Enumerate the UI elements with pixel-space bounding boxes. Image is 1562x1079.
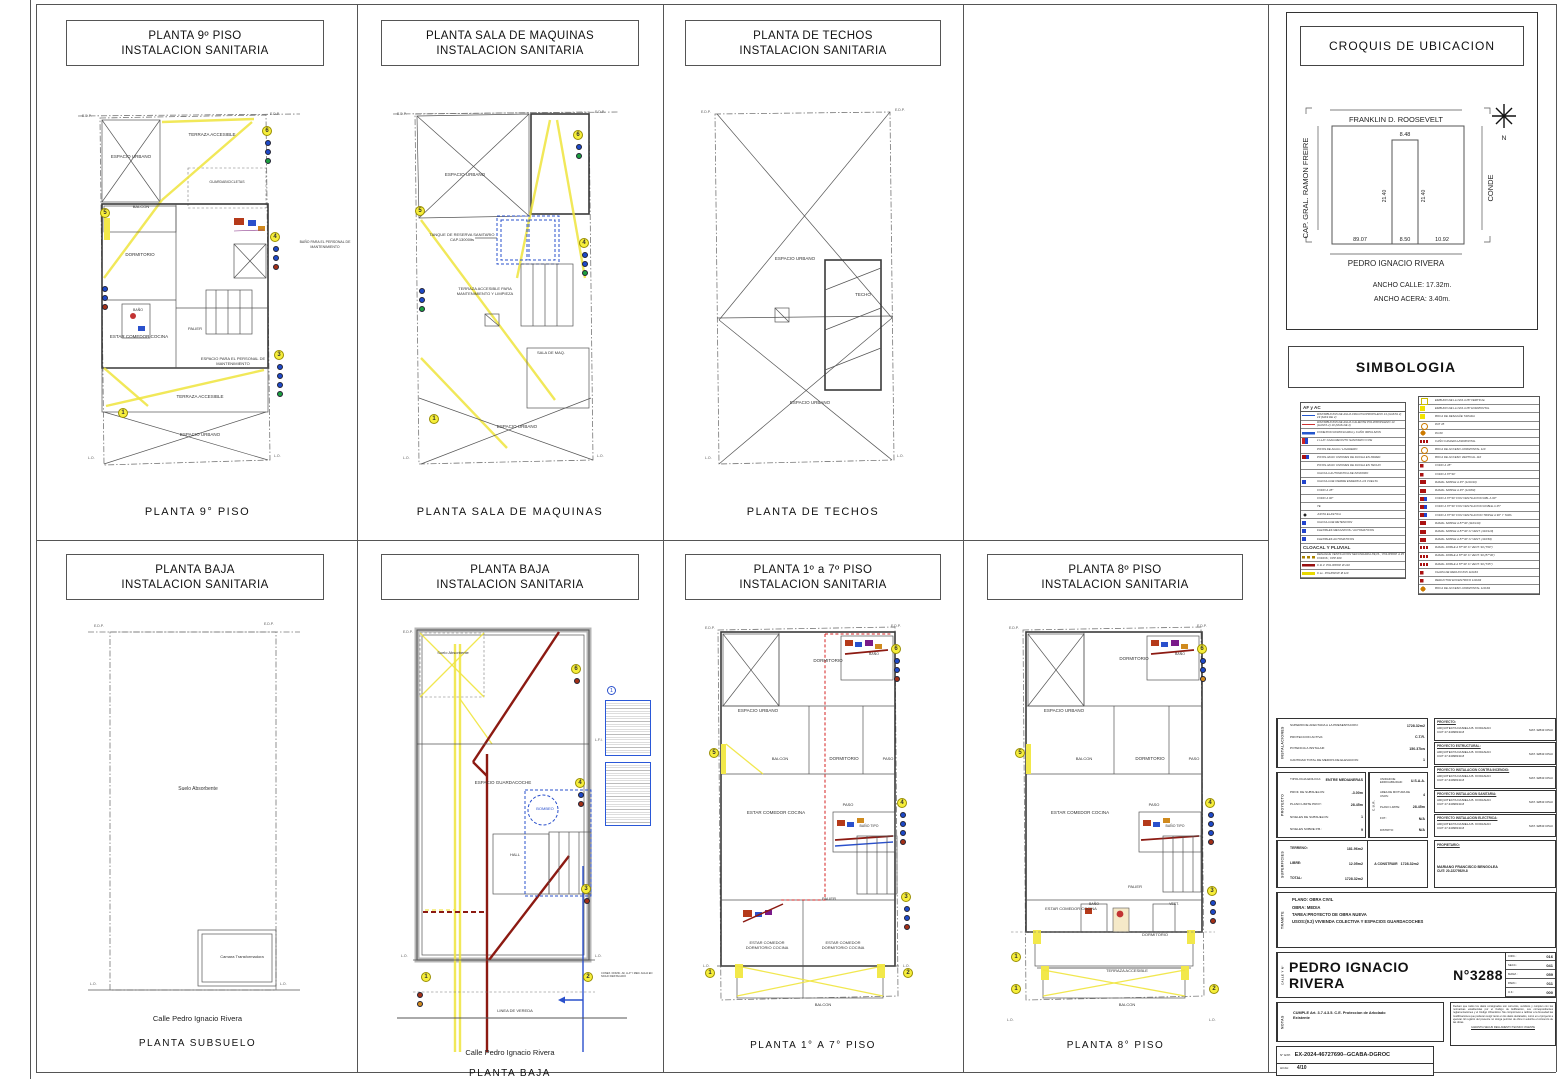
room-label: ESTAR COMEDOR DORMITORIO COCINA [739,940,795,950]
legend-label: BOCA DE ACCESO HORIZONTAL 110 [1435,448,1485,451]
riser-dot-icon [582,270,588,276]
catastro-row: CIRC.: 016 [1506,953,1555,961]
legend-symbol-icon [1420,529,1433,535]
field-label: NIVELES DE SUBSUELOS: [1290,816,1329,819]
catastro-label: CIRC.: [1508,955,1516,958]
field-label: SUPERFICIE AFECTADA A LA PRESENTACION: [1290,724,1358,727]
legend-row: RAMAL SIMPLE A 87°30' (110/110) [1419,520,1539,528]
legend-symbol-icon [1420,512,1433,518]
legend-label: RAMAL DOBLE A 87°30' C/ VENT. 90 (87°30'… [1435,554,1495,557]
section-label: TRAMITE [1277,893,1287,947]
panel-title-box: PLANTA BAJA INSTALACION SANITARIA [66,554,324,600]
croquis-title: CROQUIS DE UBICACION [1300,26,1524,66]
tramite-line: TAREA:PROYECTO DE OBRA NUEVA [1292,912,1551,917]
street-name: CONDE [1486,174,1495,201]
legend-symbol-icon [1302,562,1315,568]
legend-row: RAMAL SIMPLE A 45° (110/63) [1419,487,1539,495]
floorplan-drawing [663,604,963,1044]
riser-dot-icon [1200,676,1206,682]
room-label: HALL [495,852,535,857]
riser-dot-icon [900,812,906,818]
riser-dot-icon [904,906,910,912]
section-label: C.U.R. [1369,773,1377,837]
room-label: Suelo Absorbente [158,786,238,793]
legend-row: CODO A 87°30' [1419,471,1539,479]
field-label: PLANO LIMITE: [1380,806,1400,809]
field-label: CANTIDAD TOTAL DE MEDIOS DE ELEVACION: [1290,759,1359,762]
legend-symbol-icon [1420,586,1433,592]
field-row: SUPERFICIE AFECTADA A LA PRESENTACION: 1… [1290,724,1425,728]
expediente-row: N° EXP. EX-2024-46727690--GCABA-DGROC [1277,1047,1433,1064]
street-name: FRANKLIN D. ROOSEVELT [1349,115,1443,124]
legend-symbol-icon [1302,512,1315,518]
dim-label: 10.92 [1435,237,1449,243]
catastro-row: MANZ.: 059 [1506,971,1555,979]
field-row: PLANO LIMITE: 28.45m [1380,805,1425,809]
panel-title: PLANTA BAJA [155,564,235,576]
edge-label: E.D.P. [94,624,104,628]
dim-label: 8.48 [1400,132,1411,138]
owner-cuit: CUIT: 20-22279529-8 [1437,869,1553,873]
legend-label: PICOS AF/AC UNIONES DE DUCHA EN TECHO [1317,464,1381,467]
tramite-line: USOS:(9.2) VIVIENDA COLECTIVA Y ESPACIOS… [1292,919,1551,924]
legend-symbol-icon [1420,504,1433,510]
riser-dot-icon [900,821,906,827]
professional-entry: PROYECTO: ARQUITECTA DANIELA B. KODJAIAN… [1434,718,1556,741]
riser-dot-icon [894,667,900,673]
professional-mat: MAT. 32843 CPAU [1529,752,1553,756]
spec-note-box [605,762,651,826]
legend-symbol-icon [1420,545,1433,551]
simbologia-title: SIMBOLOGIA [1288,346,1524,388]
field-label: TOTAL: [1290,877,1302,881]
legend-symbol-icon [1302,570,1315,576]
legend-row: TE [1301,503,1405,511]
riser-dot-icon [265,149,271,155]
field-value: 1 [1361,815,1363,819]
field-row: PROF. DE SUBSUELOS: -3.00m [1290,791,1363,795]
catastro-row: U.F.: 000 [1506,989,1555,997]
room-label: DORMITORIO [108,252,172,258]
room-label: ESTAR COMEDOR COCINA [108,334,170,340]
legend-label: BOCA DE ACCESO VERTICAL 110 [1435,456,1481,459]
field-value: N/A [1419,828,1425,832]
edge-label: L.O. [403,456,410,460]
section-label: INSTALACIONES [1277,719,1287,767]
section-label: SUPERFICIES [1277,841,1287,887]
legend-label: PICOS DE AGUA / LAVADERO [1317,448,1357,451]
professional-role: PROYECTO: [1437,720,1553,724]
section-label: CALLE Y N° [1277,953,1287,997]
field-label: POTENCIA A INSTALAR: [1290,747,1325,750]
plan-sheet: PLANTA 9º PISO INSTALACION SANITARIA [0,0,1562,1079]
legend-label: BOCA DE DESAGÜE TAPADA [1435,415,1475,418]
riser-dot-icon [578,801,584,807]
legend-row: CODO A 87°30' CON VENTILACION TRIPLE A 9… [1419,512,1539,520]
legend-label: REDUCTOR EXCENTRICO 110x63 [1435,579,1481,582]
riser-dot-icon [419,297,425,303]
riser-dot-icon [419,306,425,312]
legend-row: CODO A 45° [1419,463,1539,471]
legend-row: RAMAL SIMPLE A 87°30' C/ VENT. (110/110) [1419,528,1539,536]
proyecto-box: PROYECTO TIPOLOGIA EDILICIA: ENTRE MEDIA… [1276,772,1366,838]
panel-subtitle: INSTALACION SANITARIA [1041,579,1188,591]
expediente-label: N° EXP. [1280,1053,1291,1057]
riser-marker: 6 [1197,644,1207,654]
professional-mat: MAT. 32843 CPAU [1529,800,1553,804]
riser-dot-icon [900,830,906,836]
legend-symbol-icon [1302,421,1315,427]
professional-entry: PROYECTO INSTALACION SANITARIA: ARQUITEC… [1434,790,1556,813]
panel-subtitle: INSTALACION SANITARIA [739,45,886,57]
street-number-cell: PEDRO IGNACIO RIVERA N°3288 [1289,953,1503,997]
professional-mat: MAT. 32843 CPAU [1529,824,1553,828]
field-value: C.T.R. [1415,735,1425,739]
legend-label: CAÑO CAMARA HORIZONTAL [1435,440,1476,443]
legend-row: C.LL. POLIPROP. Ø 110 [1301,570,1405,578]
declaration-text: Declaro que todos los datos consignados … [1453,1005,1553,1024]
riser-marker: 3 [1207,886,1217,896]
floorplan-drawing [38,604,357,1024]
room-label: TERRAZA ACCESIBLE PARA MANTENIMIENTO Y L… [445,286,525,296]
field-value: 1728.32m2 [1345,877,1363,881]
riser-marker: 5 [100,208,110,218]
room-label: PASO [1179,756,1209,761]
riser-dot-icon [894,676,900,682]
field-row: NIVELES DE SUBSUELOS: 1 [1290,815,1363,819]
professional-entry: PROYECTO INSTALACION CONTRA INCENDIO: AR… [1434,766,1556,789]
legend-label: PAT 45 [1435,423,1444,426]
legend-row: EMBUDO DE LLUVIA A PP HORIZONTAL [1419,405,1539,413]
edge-label: L.O. [401,954,408,958]
edge-label: E.D.P. [403,630,413,634]
riser-dot-icon [1208,830,1214,836]
professionals-stack: PROYECTO: ARQUITECTA DANIELA B. KODJAIAN… [1434,718,1556,838]
legend-row: BOCA DE ACCESO VERTICAL 110 [1419,454,1539,462]
legend-symbol-icon [1302,520,1315,526]
legend-label: CODO A 87°30' CON VENTILACION DOBLE A 45… [1435,505,1501,508]
room-label: BAÑO [859,652,889,657]
room-label: TANQUE DE RESERVA SANITARIO CAP.13000lts [423,232,501,242]
catastro-value: 041 [1546,963,1553,968]
riser-dot-icon [1210,900,1216,906]
panel-subsuelo: PLANTA BAJA INSTALACION SANITARIA Suelo … [38,540,357,1072]
field-value: -3.00m [1352,791,1363,795]
legend-label: VALVULA DE RETENCION [1317,521,1352,524]
field-row: LIBRE: 12.05m2 [1290,862,1363,866]
legend-label: FLEXIBLES MECANICOS / AUTOMATICOS [1317,529,1374,532]
room-label: BAÑO [1081,902,1107,907]
riser-dot-icon [900,839,906,845]
north-arrow-icon [1492,104,1516,128]
room-label: GUARDABICICLETAS [188,180,266,185]
legend-header: AF y AC [1301,403,1405,412]
legend-symbol-icon [1420,578,1433,584]
room-label: BALCON [791,1002,855,1007]
right-column: CROQUIS DE UBICACION FRANKLIN D. ROOSEVE… [1268,0,1562,1079]
room-label: PASO [873,756,903,761]
room-label: ESPACIO URBANO [1035,708,1093,714]
riser-marker: 1 [118,408,128,418]
room-label: BAÑO TIPO [1153,824,1197,829]
field-value: N/A [1419,817,1425,821]
riser-dot-icon [578,792,584,798]
field-row: FOT.: N/A [1380,817,1425,821]
calle-box: CALLE Y N° PEDRO IGNACIO RIVERA N°3288 C… [1276,952,1556,998]
field-rows: SUPERFICIE AFECTADA A LA PRESENTACION: 1… [1288,719,1427,767]
room-label: BAÑO [124,308,152,313]
legend-label: JUNTA ELASTICA [1317,513,1341,516]
floorplan-drawing [663,68,963,504]
legend-symbol-icon [1420,553,1433,559]
panel-subtitle: INSTALACION SANITARIA [121,579,268,591]
professional-mat: MAT. 32843 CPAU [1529,728,1553,732]
legend-symbol-icon [1302,554,1315,560]
panel-piso-1-7: PLANTA 1º a 7º PISO INSTALACION SANITARI… [663,540,963,1072]
legend-symbol-icon [1302,454,1315,460]
panel-subtitle: INSTALACION SANITARIA [739,579,886,591]
legend-symbol-icon [1302,438,1315,444]
riser-marker: 2 [583,972,593,982]
legend-label: RAMAL DOBLE A 87°30' C/ VENT. 90 (T45°) [1435,563,1493,566]
ancho-calle-note: ANCHO CALLE: 17.32m. [1308,282,1516,289]
legend-row: VALVULA AUTOMATICA DE INODORO [1301,470,1405,478]
edge-label: L.O. [1209,1018,1216,1022]
frame-left [36,4,37,1072]
owner-heading: PROPIETARIO: [1437,843,1553,847]
field-rows: TIPOLOGIA EDILICIA: ENTRE MEDIANERAS PRO… [1288,773,1365,837]
room-label: ESPACIO URBANO [477,424,557,430]
riser-marker: 5 [415,206,425,216]
legend-symbol-icon [1302,487,1315,493]
panel-title-box: PLANTA DE TECHOS INSTALACION SANITARIA [685,20,941,66]
catastro-label: PARC.: [1508,982,1517,985]
legend-row: 1 LL/P. CADA RECINTO SANITARIO O PE [1301,438,1405,446]
title-block: INSTALACIONES SUPERFICIE AFECTADA A LA P… [1274,715,1556,1077]
riser-dot-icon [904,924,910,930]
edge-label: L.O. [705,456,712,460]
legend-row: CODO A 90° [1301,495,1405,503]
riser-dot-icon [265,140,271,146]
legend-af-ac: AF y AC DISTRIBUCION DE AGUA FRIA POLIPR… [1300,402,1406,579]
panel-title-box: PLANTA SALA DE MAQUINAS INSTALACION SANI… [381,20,639,66]
professional-role: PROYECTO INSTALACION SANITARIA: [1437,792,1553,796]
field-label: PROF. DE SUBSUELOS: [1290,791,1325,794]
riser-marker: 4 [270,232,280,242]
room-label: ESPACIO GUARDACOCHE [461,780,545,786]
legend-symbol-icon [1420,414,1433,420]
panel-planta-9-piso: PLANTA 9º PISO INSTALACION SANITARIA [38,4,357,540]
edge-label: L.O. [90,982,97,986]
field-row: UNIDAD DE EDIFICABILIDAD: U.S.A.A. [1380,778,1425,784]
legend-symbol-icon [1420,537,1433,543]
legend-symbol-icon [1302,504,1315,510]
room-label: DORMITORIO [1127,932,1183,937]
ancho-acera-note: ANCHO ACERA: 3.40m. [1308,296,1516,303]
panel-caption: PLANTA 1° A 7° PISO [663,1040,963,1051]
riser-marker: 6 [891,644,901,654]
field-rows: TERRENO: 181.96m2 LIBRE: 12.05m2 TOTAL: … [1288,841,1365,887]
room-label: BAÑO TIPO [847,824,891,829]
legend-symbol-icon [1302,495,1315,501]
floorplan-drawing [357,604,663,1052]
location-map: FRANKLIN D. ROOSEVELT CAP. GRAL. RAMON F… [1288,70,1536,276]
riser-dot-icon [273,264,279,270]
riser-marker: 6 [571,664,581,674]
panel-title: PLANTA SALA DE MAQUINAS [426,30,594,42]
sheet-margin-line [30,0,31,1079]
legend-row: RAMAL SIMPLE A 45° (110/110) [1419,479,1539,487]
legend-symbol-icon [1302,471,1315,477]
legend-row: CODO A 87°30' CON VENTILACION DBL A 90° [1419,495,1539,503]
field-label: TERRENO: [1290,847,1308,851]
legend-row: PAT 45 [1419,422,1539,430]
dim-label: 21.40 [1382,190,1388,203]
professional-mat: MAT. 32843 CPAU [1529,776,1553,780]
riser-dot-icon [273,246,279,252]
riser-dot-icon [1200,667,1206,673]
panel-title-box: PLANTA 8º PISO INSTALACION SANITARIA [987,554,1243,600]
room-label: ESTAR COMEDOR COCINA [1043,906,1099,911]
legend-label: RAMAL SIMPLE A 87°30' (110/110) [1435,522,1481,525]
legend-label: BOCA DE ACCESO HORIZONTAL 110x63 [1435,587,1490,590]
legend-row: CODO A 87°30' CON VENTILACION DOBLE A 45… [1419,503,1539,511]
legend-rows: EMBUDO DE LLUVIA A PP VERTICAL EMBUDO DE… [1419,397,1539,594]
panel-piso-8: PLANTA 8º PISO INSTALACION SANITARIA [963,540,1268,1072]
riser-marker: 5 [1015,748,1025,758]
riser-dot-icon [1210,909,1216,915]
dim-label: 8.50 [1400,237,1411,243]
room-label: DORMITORIO [797,658,859,664]
riser-dot-icon [584,898,590,904]
edge-label: L.O. [280,982,287,986]
catastro-row: SECC.: 041 [1506,962,1555,970]
legend-label: 1 LL/P. CADA RECINTO SANITARIO O PE [1317,439,1372,442]
field-row: AREA DE MIXTURA DE USOS: 4 [1380,791,1425,797]
street-name: CAP. GRAL. RAMON FREIRE [1301,138,1310,239]
panel-subtitle: INSTALACION SANITARIA [436,579,583,591]
edge-label: E.D.P. [82,114,92,118]
legend-row: RAMAL DOBLE A 87°30' C/ VENT. 90 (87°30'… [1419,553,1539,561]
tramite-line: OBRA: MEDIA [1292,905,1551,910]
expediente-value: EX-2024-46727690--GCABA-DGROC [1295,1052,1390,1058]
room-label: ESPACIO URBANO [763,256,827,262]
legend-label: DISTRIBUCION DE AGUA FRIA POLIPROPILENO … [1317,413,1404,420]
legend-row: BOCA DE ACCESO HORIZONTAL 110 [1419,446,1539,454]
dim-label: 89.07 [1353,237,1367,243]
legend-symbol-icon [1302,430,1315,436]
legend-symbol-icon [1420,439,1433,445]
legend-row: CODO A 45° [1301,487,1405,495]
room-label: PALIER [176,326,214,331]
legend-row: PICOS AF/AC UNIONES DE DUCHA EN TECHO [1301,462,1405,470]
field-label: PROTECCION ACTIVA: [1290,736,1323,739]
legend-label: RAMAL SIMPLE A 87°30' C/ VENT. (110/110) [1435,530,1493,533]
north-label: N [1502,135,1507,142]
room-label: ESTAR COMEDOR COCINA [745,810,807,816]
legend-label: CODO A 87°30' CON VENTILACION TRIPLE A 9… [1435,514,1512,517]
panel-planta-baja: PLANTA BAJA INSTALACION SANITARIA [357,540,663,1072]
riser-dot-icon [574,678,580,684]
room-label: BALCON [110,204,172,209]
panel-caption: PLANTA 8° PISO [963,1040,1268,1051]
field-label: NIVELES SOBRE P.B.: [1290,828,1322,831]
hoja-label: HOJA: [1280,1066,1289,1070]
riser-marker: 1 [705,968,715,978]
panel-title: PLANTA 9º PISO [148,30,241,42]
field-label: UNIDAD DE EDIFICABILIDAD: [1380,778,1409,784]
room-label: BOMBEO [511,806,579,811]
edge-label: E.D.P. [1009,626,1019,630]
field-label: PLANO LIMITE PROY.: [1290,803,1322,806]
field-value: 28.45m [1413,805,1425,809]
calle-number: N°3288 [1453,967,1503,983]
riser-marker: 2 [903,968,913,978]
catastro-row: PARC.: 011 [1506,980,1555,988]
tramite-box: TRAMITE PLANO: OBRA CIVILOBRA: MEDIATARE… [1276,892,1556,948]
edge-label: E.D.P. [701,110,711,114]
panel-title-box: PLANTA 9º PISO INSTALACION SANITARIA [66,20,324,66]
legend-symbol-icon [1420,520,1433,526]
legend-row: RAMAL SIMPLE A 87°30' C/ VENT. (110/63) [1419,536,1539,544]
legend-symbol-icon [1420,430,1433,436]
riser-dot-icon [102,295,108,301]
legend-row: VALVULA DE CIERRE ESFERICA 1/4 VUELTA [1301,478,1405,486]
legend-row: JUNTA ELASTICA [1301,511,1405,519]
catastro-table: CIRC.: 016 SECC.: 041 MANZ.: 059 [1505,953,1555,997]
legend-row: EMBUDO DE LLUVIA A PP VERTICAL [1419,397,1539,405]
catastro-value: 059 [1546,972,1553,977]
professional-entry: PROYECTO ESTRUCTURAL: ARQUITECTA DANIELA… [1434,742,1556,765]
legend-row: BOCA DE ACCESO HORIZONTAL 110x63 [1419,585,1539,593]
legend-symbol-icon [1302,446,1315,452]
legend-row: DESAGÜE VENTILACION SECUNDARIA PE,PL ; P… [1301,553,1405,562]
field-row: PROTECCION ACTIVA: C.T.R. [1290,735,1425,739]
legend-label: CODO A 45° [1317,489,1333,492]
catastro-label: U.F.: [1508,991,1514,994]
declaration-footer: GARANTIA SEGUN REGLAMENTO TECNICO VIGENT… [1453,1026,1553,1029]
riser-dot-icon [417,992,423,998]
riser-dot-icon [1210,918,1216,924]
edge-label: E.D.P. [264,622,274,626]
riser-dot-icon [277,391,283,397]
room-label: TERRAZA ACCESIBLE [158,394,242,400]
legend-symbol-icon [1420,422,1433,428]
legend-symbol-icon [1420,479,1433,485]
legend-symbol-icon [1302,463,1315,469]
riser-marker: 4 [579,238,589,248]
legend-label: RAMAL SIMPLE A 87°30' C/ VENT. (110/63) [1435,538,1492,541]
field-value: ENTRE MEDIANERAS [1326,778,1363,782]
legend-symbol-icon [1420,455,1433,461]
legend-label: CODO A 45° [1435,464,1451,467]
riser-dot-icon [102,304,108,310]
riser-marker: 2 [1209,984,1219,994]
panel-techos: PLANTA DE TECHOS INSTALACION SANITARIA E… [663,4,963,540]
street-name: PEDRO IGNACIO RIVERA [1348,259,1445,268]
superficies-box: SUPERFICIES TERRENO: 181.96m2 LIBRE: 12.… [1276,840,1428,888]
room-label: ESTAR COMEDOR DORMITORIO COCINA [815,940,871,950]
declaration-box: Declaro que todos los datos consignados … [1450,1002,1556,1046]
catastro-label: MANZ.: [1508,973,1517,976]
field-value: 12.05m2 [1349,862,1363,866]
cur-box: C.U.R. UNIDAD DE EDIFICABILIDAD: U.S.A.A… [1368,772,1428,838]
riser-marker: 3 [581,884,591,894]
edge-label: L.F.I. [595,738,603,742]
room-label: BALCON [755,756,805,761]
street-caption: Calle Pedro Ignacio Rivera [357,1048,663,1057]
legend-row: FLEXIBLES MECANICOS / AUTOMATICOS [1301,528,1405,536]
